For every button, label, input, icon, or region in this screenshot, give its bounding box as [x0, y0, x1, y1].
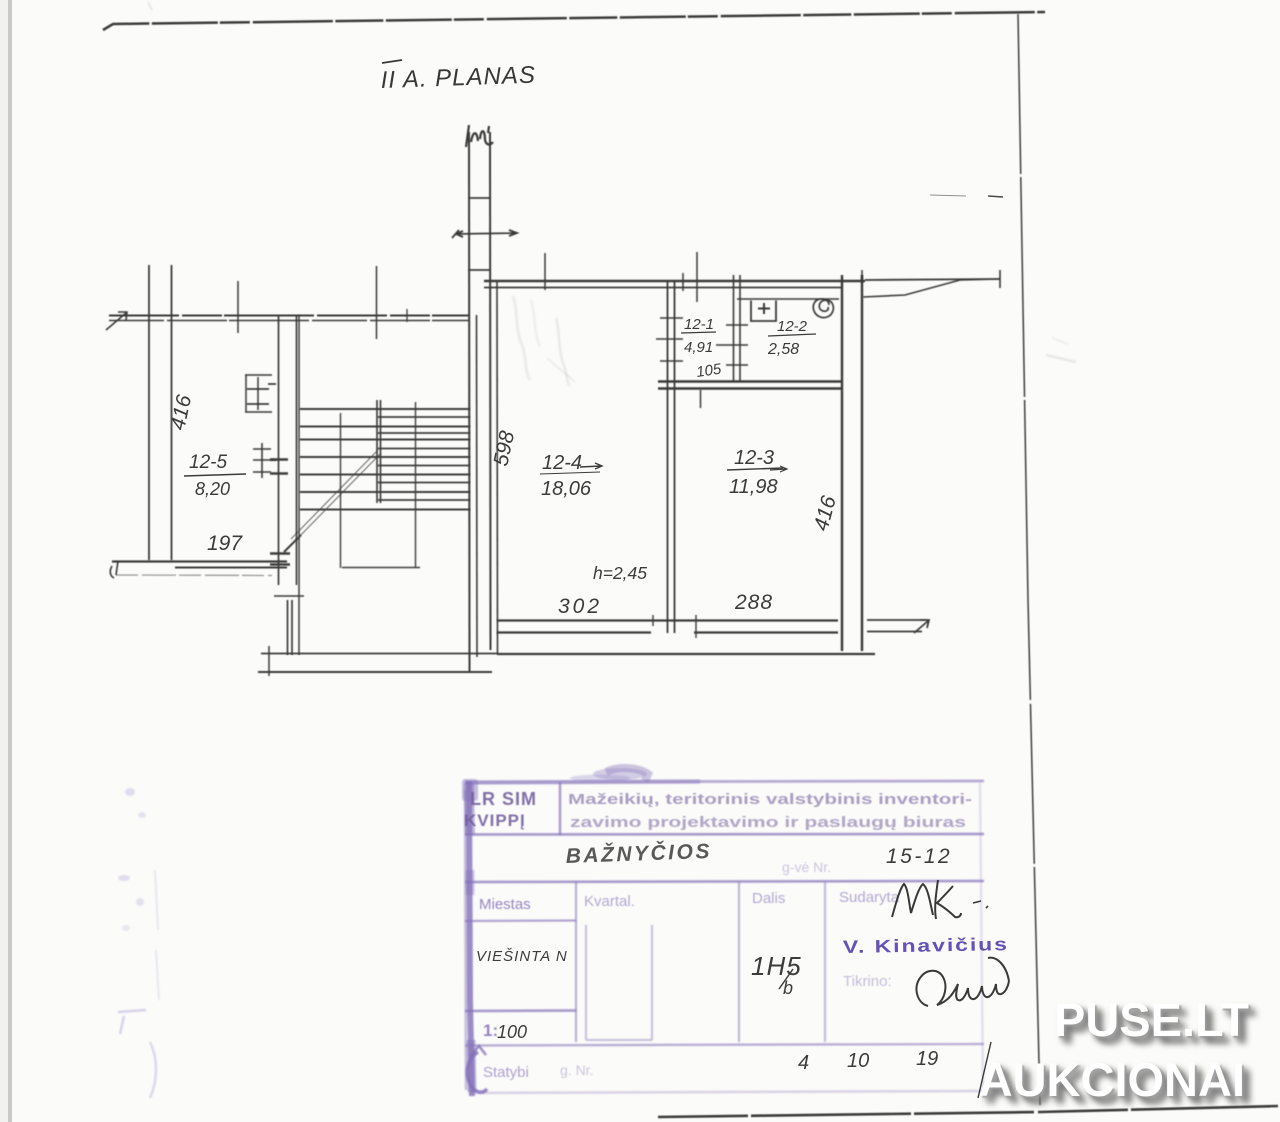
svg-text:II A. PLANAS: II A. PLANAS: [380, 62, 536, 94]
svg-text:Kvartal.: Kvartal.: [584, 893, 635, 910]
svg-text:4,91: 4,91: [684, 339, 713, 356]
svg-text:12-1: 12-1: [684, 316, 714, 333]
svg-text:1H5: 1H5: [751, 951, 802, 981]
svg-text:11,98: 11,98: [729, 476, 778, 498]
svg-text:18,06: 18,06: [541, 478, 592, 500]
svg-text:100: 100: [497, 1022, 527, 1042]
svg-text:KVIPPĮ: KVIPPĮ: [464, 811, 526, 830]
svg-text:LR SIM: LR SIM: [470, 789, 537, 809]
svg-text:Dalis: Dalis: [752, 890, 785, 907]
svg-text:12-5: 12-5: [189, 452, 227, 473]
svg-text:h=2,45: h=2,45: [593, 563, 647, 583]
svg-text:AUKCIONAI: AUKCIONAI: [979, 1053, 1245, 1106]
svg-text:g-vė Nr.: g-vė Nr.: [782, 859, 831, 875]
svg-text:12-4: 12-4: [542, 452, 582, 474]
svg-text:Sudaryta: Sudaryta: [839, 889, 900, 906]
svg-text:197: 197: [207, 532, 243, 555]
svg-text:VIEŠINTA N: VIEŠINTA N: [476, 948, 568, 965]
svg-text:12-2: 12-2: [777, 318, 808, 335]
svg-text:288: 288: [734, 591, 773, 614]
svg-text:4: 4: [798, 1052, 809, 1074]
svg-text:15-12: 15-12: [886, 845, 952, 868]
svg-text:PUSE.LT: PUSE.LT: [1054, 993, 1249, 1046]
svg-text:2,58: 2,58: [767, 341, 799, 358]
svg-text:Miestas: Miestas: [479, 896, 531, 913]
svg-text:Tikrino:: Tikrino:: [843, 973, 892, 990]
svg-text:10: 10: [847, 1050, 869, 1072]
svg-text:V. Kinavičius: V. Kinavičius: [843, 934, 1009, 957]
svg-text:BAŽNYČIOS: BAŽNYČIOS: [565, 839, 712, 868]
svg-text:19: 19: [916, 1048, 938, 1070]
svg-text:Statybi: Statybi: [483, 1064, 529, 1081]
svg-text:zavimo projektavimo ir paslaug: zavimo projektavimo ir paslaugų biuras: [570, 814, 966, 831]
svg-text:302: 302: [558, 595, 602, 618]
svg-text:12-3: 12-3: [734, 447, 774, 469]
svg-text:Mažeikių, teritorinis valstybi: Mažeikių, teritorinis valstybinis invent…: [568, 791, 972, 808]
svg-text:1:: 1:: [483, 1021, 498, 1040]
svg-text:105: 105: [695, 361, 723, 381]
svg-text:g. Nr.: g. Nr.: [560, 1062, 593, 1078]
svg-text:8,20: 8,20: [195, 479, 230, 499]
